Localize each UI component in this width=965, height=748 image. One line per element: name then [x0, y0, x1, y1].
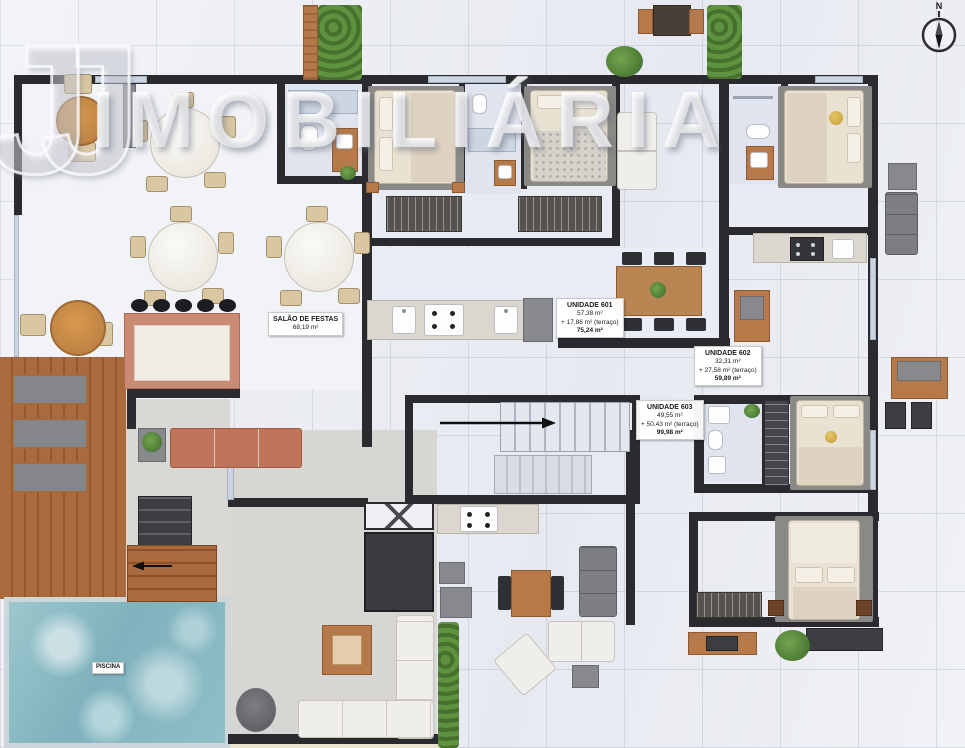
- chair: [689, 9, 704, 34]
- unit-603-total-area: 99,98 m²: [641, 429, 699, 437]
- compass: N: [914, 2, 964, 62]
- unit-603-private-area: 49,55 m²: [641, 412, 699, 420]
- chair: [20, 314, 46, 336]
- wall-stairs-left: [405, 395, 413, 503]
- window-salao-left: [14, 215, 19, 357]
- wall-hall-right: [719, 241, 729, 345]
- pillow: [801, 405, 828, 418]
- nightstand: [452, 182, 465, 193]
- round-party-table: [150, 108, 220, 178]
- wall-living-top: [228, 498, 368, 507]
- round-wood-table: [56, 96, 106, 146]
- elevator-shaft: [364, 502, 434, 530]
- blanket: [787, 93, 827, 182]
- washer: [708, 456, 726, 474]
- toilet: [300, 125, 318, 151]
- pillow: [573, 95, 603, 109]
- floor-plan: SALÃO DE FESTAS 68,19 m² UNIDADE 601 57,…: [0, 0, 965, 748]
- blanket: [411, 93, 455, 182]
- piscina-label: PISCINA: [92, 662, 124, 674]
- sink: [750, 152, 768, 168]
- chair: [551, 576, 564, 610]
- double-bed: [796, 400, 864, 486]
- chair: [64, 74, 92, 94]
- kitchen-cart: [440, 587, 472, 618]
- chair: [338, 288, 360, 304]
- elevator: [364, 532, 434, 612]
- cooktop: [460, 506, 498, 532]
- toilet: [708, 430, 723, 450]
- unit-601-total-area: 75,24 m²: [561, 327, 619, 335]
- pillow: [827, 567, 855, 583]
- hedge: [707, 5, 742, 79]
- plant: [142, 432, 162, 452]
- small-dining-table: [511, 570, 551, 617]
- fridge: [523, 298, 553, 342]
- chair: [654, 252, 674, 265]
- chair: [622, 252, 642, 265]
- shower: [288, 90, 358, 114]
- chair: [885, 402, 906, 429]
- nightstand: [856, 600, 872, 616]
- chair: [622, 318, 642, 331]
- chair: [130, 236, 146, 258]
- double-bed: [530, 90, 608, 182]
- chair: [686, 252, 706, 265]
- sun-lounger: [12, 374, 88, 405]
- pillow: [847, 133, 861, 163]
- sink: [392, 306, 416, 334]
- bench: [806, 628, 883, 651]
- unit-601-label: UNIDADE 601 57,38 m² + 17,86 m² (terraço…: [556, 298, 624, 338]
- blanket: [533, 131, 606, 181]
- pillow: [537, 95, 567, 109]
- plant: [744, 404, 760, 418]
- round-party-table: [284, 222, 354, 292]
- sun-lounger: [12, 418, 88, 449]
- plant: [606, 46, 643, 77]
- wall-right-unit-left: [719, 83, 729, 241]
- chair: [266, 236, 282, 258]
- bar-stool: [219, 299, 236, 312]
- bar-stool: [175, 299, 192, 312]
- chair: [170, 206, 192, 222]
- unit-602-private-area: 32,31 m²: [699, 358, 757, 366]
- unit-602-name: UNIDADE 602: [699, 349, 757, 358]
- sink: [494, 306, 518, 334]
- cooktop: [790, 237, 824, 261]
- pillow: [795, 567, 823, 583]
- direction-arrow-icon: [130, 560, 174, 572]
- unit-602-label: UNIDADE 602 32,31 m² + 27,58 m² (terraço…: [694, 346, 762, 386]
- shower-rail: [733, 96, 773, 99]
- planter-bench: [303, 5, 318, 80]
- unit-601-terrace-area: + 17,86 m² (terraço): [561, 319, 619, 327]
- nightstand: [366, 182, 379, 193]
- chair: [220, 116, 236, 138]
- salao-label-area: 68,19 m²: [273, 324, 338, 332]
- desk-top: [897, 361, 941, 381]
- stair-direction-arrow-icon: [438, 416, 558, 430]
- side-table: [572, 665, 599, 688]
- chair: [172, 92, 194, 108]
- shower: [468, 128, 516, 152]
- window-right-1: [870, 258, 876, 340]
- toilet: [472, 94, 487, 114]
- grill: [138, 496, 192, 546]
- wall-salao-bottom-v: [127, 389, 136, 429]
- compass-north-label: N: [914, 2, 964, 11]
- chair: [218, 232, 234, 254]
- wall-salao-bottom: [127, 389, 240, 398]
- chair: [911, 402, 932, 429]
- unit-601-private-area: 57,38 m²: [561, 310, 619, 318]
- chair: [306, 206, 328, 222]
- nightstand: [768, 600, 784, 616]
- double-bed: [374, 90, 456, 184]
- unit-603-terrace-area: + 50,43 m² (terraço): [641, 421, 699, 429]
- gold-pillow: [825, 431, 837, 443]
- table-centerpiece: [650, 282, 666, 298]
- chair: [654, 318, 674, 331]
- cooktop: [424, 304, 464, 336]
- wall-bedrooms-bottom: [362, 238, 620, 246]
- salao-label: SALÃO DE FESTAS 68,19 m²: [268, 312, 343, 336]
- pillow: [847, 97, 861, 127]
- round-party-table: [148, 222, 218, 292]
- mini-fridge: [439, 562, 465, 584]
- chair: [686, 318, 706, 331]
- wardrobe: [764, 400, 789, 486]
- chair: [146, 176, 168, 192]
- terracotta-sofa: [170, 428, 302, 468]
- cabinet: [888, 163, 917, 190]
- sectional-sofa-horizontal: [298, 700, 434, 738]
- chair: [498, 576, 511, 610]
- salao-label-name: SALÃO DE FESTAS: [273, 315, 338, 324]
- round-wood-table: [50, 300, 106, 356]
- hedge: [318, 5, 362, 80]
- wall-salao-bath-v: [277, 83, 285, 183]
- compass-icon: [916, 11, 962, 57]
- gray-sofa: [885, 192, 918, 255]
- unit-601-name: UNIDADE 601: [561, 301, 619, 310]
- staircase-lower-flight: [494, 455, 592, 494]
- bar-counter-top: [134, 325, 230, 381]
- blanket: [799, 447, 862, 485]
- sink: [832, 239, 854, 259]
- bar-stool: [153, 299, 170, 312]
- gray-sofa: [579, 546, 617, 617]
- toilet: [746, 124, 770, 139]
- pillow: [379, 137, 393, 171]
- wardrobe: [518, 196, 602, 232]
- wall-stairs-bottom: [405, 495, 640, 504]
- pillow: [833, 405, 860, 418]
- window-top-1: [95, 76, 147, 83]
- chair: [280, 290, 302, 306]
- unit-603-name: UNIDADE 603: [641, 403, 699, 412]
- window-top-3: [815, 76, 863, 83]
- chair: [204, 172, 226, 188]
- terrace-table: [653, 5, 691, 36]
- unit-602-terrace-area: + 27,58 m² (terraço): [699, 367, 757, 375]
- hedge: [438, 622, 459, 748]
- piscina-label-name: PISCINA: [96, 664, 120, 672]
- wall-left-top: [14, 75, 22, 215]
- bathroom-vanity: [708, 406, 730, 424]
- window-right-2: [870, 430, 876, 490]
- outdoor-table-top: [706, 636, 738, 651]
- unit-603-label: UNIDADE 603 49,55 m² + 50,43 m² (terraço…: [636, 400, 704, 440]
- plant: [340, 166, 356, 180]
- chair: [354, 232, 370, 254]
- wardrobe: [696, 592, 762, 618]
- unit-602-total-area: 59,89 m²: [699, 375, 757, 383]
- sink: [336, 134, 353, 149]
- duvet: [791, 523, 857, 563]
- gold-pillow: [829, 111, 843, 125]
- double-bed: [788, 520, 860, 620]
- sun-lounger: [12, 462, 88, 493]
- pillow: [379, 97, 393, 131]
- plant: [775, 630, 810, 661]
- deck-steps: [127, 545, 217, 602]
- chair: [638, 9, 653, 34]
- basket: [236, 688, 276, 732]
- blanket: [793, 587, 857, 619]
- double-bed: [784, 90, 864, 184]
- wall-living-right: [626, 430, 635, 625]
- coffee-table-top: [332, 635, 362, 665]
- lounge-chair: [617, 112, 657, 190]
- console-top: [740, 296, 764, 320]
- wardrobe: [386, 196, 462, 232]
- window-top-2: [428, 76, 506, 83]
- bar-stool: [197, 299, 214, 312]
- sink: [498, 165, 512, 179]
- salao-cabinet: [123, 84, 136, 148]
- loveseat: [548, 621, 615, 662]
- bar-stool: [131, 299, 148, 312]
